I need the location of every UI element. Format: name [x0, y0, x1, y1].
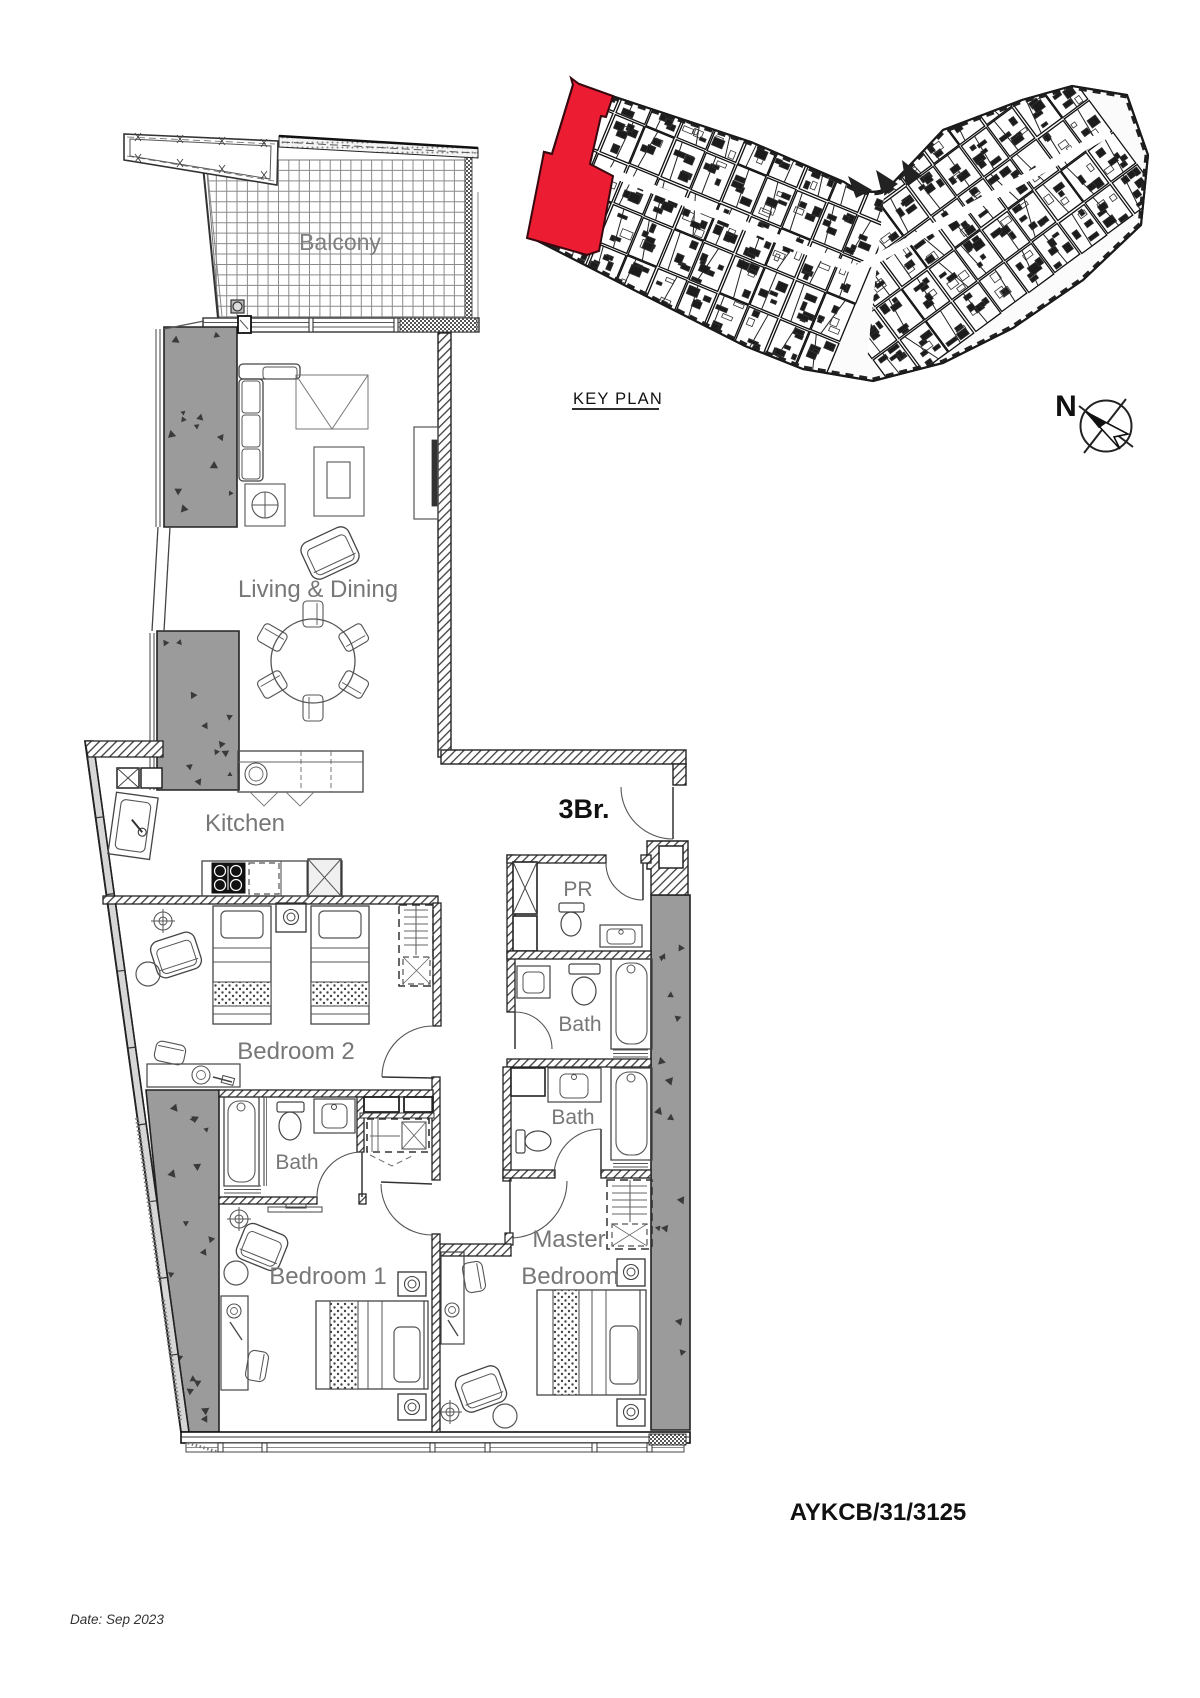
svg-text:AYKCB/31/3125: AYKCB/31/3125	[790, 1499, 967, 1526]
svg-text:PR: PR	[563, 878, 592, 901]
svg-text:Bath: Bath	[551, 1106, 594, 1129]
svg-text:Bedroom: Bedroom	[521, 1263, 618, 1290]
svg-text:KEY PLAN: KEY PLAN	[573, 390, 663, 408]
svg-text:Kitchen: Kitchen	[205, 810, 285, 837]
svg-text:Bedroom 1: Bedroom 1	[269, 1263, 386, 1290]
svg-text:Bedroom 2: Bedroom 2	[237, 1038, 354, 1065]
svg-text:Date: Sep 2023: Date: Sep 2023	[70, 1612, 164, 1627]
svg-text:Bath: Bath	[275, 1151, 318, 1174]
svg-text:Living & Dining: Living & Dining	[238, 576, 398, 603]
svg-text:Balcony: Balcony	[299, 229, 381, 255]
svg-text:Master: Master	[532, 1226, 605, 1253]
svg-text:Bath: Bath	[558, 1013, 601, 1036]
svg-text:N: N	[1055, 390, 1077, 423]
svg-text:3Br.: 3Br.	[558, 794, 609, 824]
